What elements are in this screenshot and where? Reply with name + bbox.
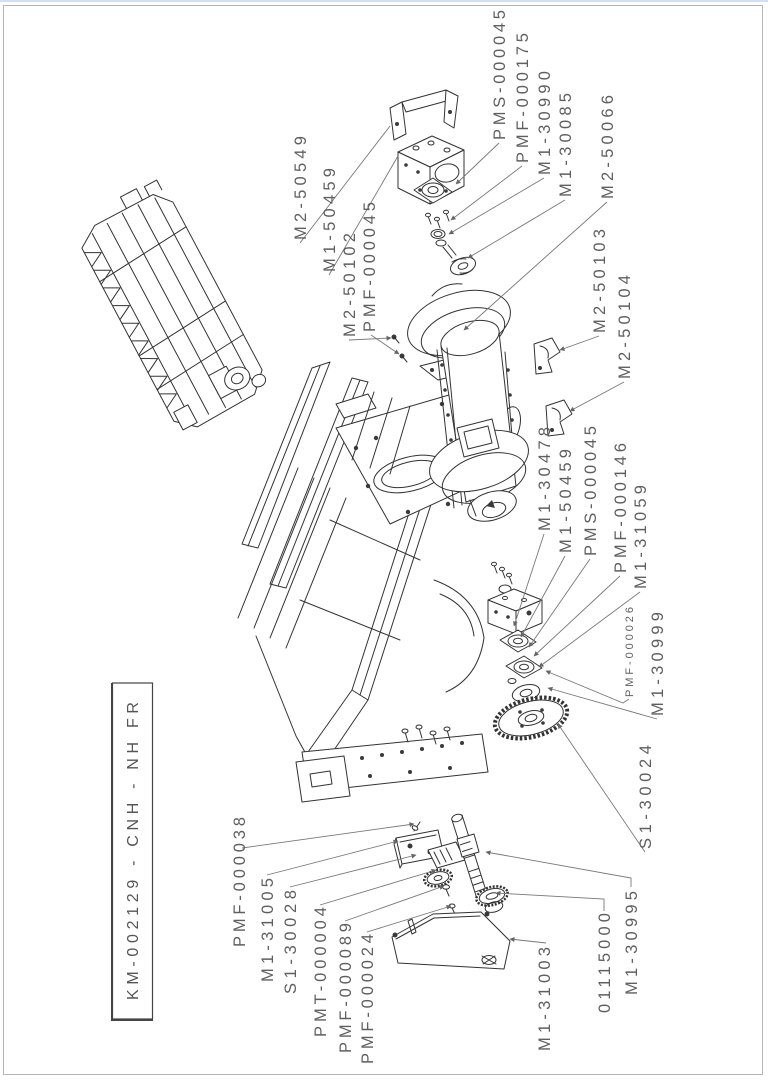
part-label: PMS-000045: [491, 10, 509, 140]
part-label: M1-50459: [557, 449, 575, 553]
bracket-parts-drawing: [534, 338, 572, 436]
part-label: PMF-000146: [612, 443, 630, 573]
part-label: M1-30990: [536, 71, 554, 175]
part-label: M2-50066: [599, 95, 617, 199]
part-label: PMF-000175: [514, 33, 532, 163]
part-label: PMF-000089: [337, 923, 355, 1053]
top-parts-drawing: [390, 90, 478, 278]
part-label: M1-30085: [557, 93, 575, 197]
part-label: M1-30995: [623, 891, 641, 995]
parts-catalog-page: M2-50549 M1-50459 M2-50102 PMF-000045 PM…: [0, 0, 768, 1080]
bottom-parts-drawing: [392, 813, 510, 969]
part-label: M1-30478: [536, 427, 554, 531]
fastener-dots: [392, 335, 408, 363]
part-label: PMF-000024: [359, 934, 377, 1064]
part-label: S1-30028: [282, 890, 300, 994]
part-label: M1-31059: [632, 485, 650, 589]
part-label: M1-31005: [259, 878, 277, 982]
part-label: PMS-000045: [582, 426, 600, 556]
part-label: 01115000: [596, 913, 614, 1013]
part-label: PMF-000026: [624, 607, 636, 697]
part-label: M1-31003: [536, 947, 554, 1051]
part-label: M2-50549: [292, 136, 310, 240]
part-label: PMF-000045: [361, 202, 379, 332]
part-label: PMF-000038: [231, 817, 249, 947]
part-label: S1-30024: [637, 745, 655, 849]
machine-overview-drawing: [69, 176, 271, 435]
part-label: M2-50104: [616, 275, 634, 379]
exploded-parts-diagram: M2-50549 M1-50459 M2-50102 PMF-000045 PM…: [0, 0, 768, 1080]
part-label: M2-50102: [341, 233, 359, 337]
part-label: M1-30999: [649, 612, 667, 716]
title-block: KM-002129 - CNH - NH FR: [112, 683, 153, 1020]
part-label: PMT-000004: [312, 907, 330, 1037]
part-label: M1-50459: [321, 168, 339, 272]
drive-cluster-drawing: [488, 562, 571, 745]
part-label: M2-50103: [591, 229, 609, 333]
